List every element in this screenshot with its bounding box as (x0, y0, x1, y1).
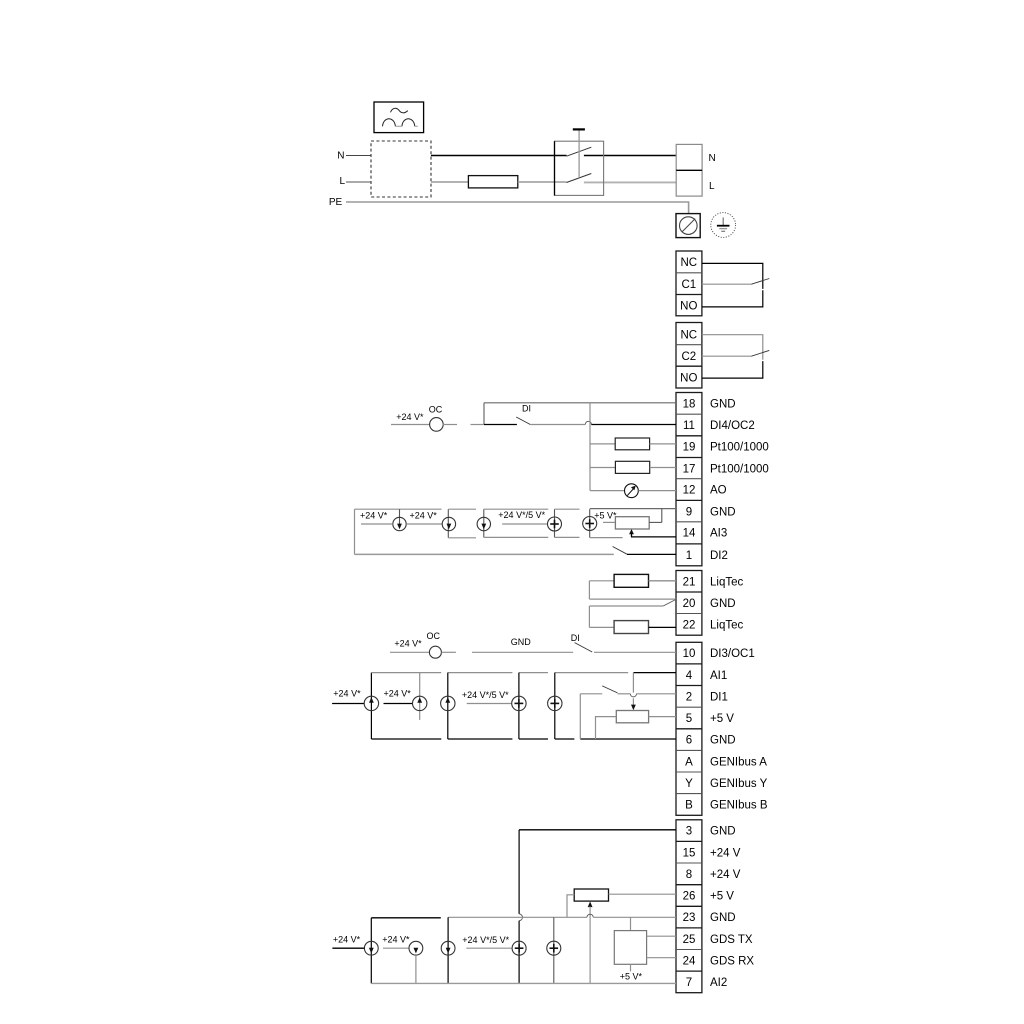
svg-text:+5 V: +5 V (710, 891, 734, 903)
svg-text:+24 V*: +24 V* (333, 688, 361, 698)
svg-text:A: A (685, 756, 693, 768)
svg-text:+24 V*: +24 V* (333, 935, 361, 945)
svg-text:4: 4 (686, 670, 693, 682)
svg-text:Pt100/1000: Pt100/1000 (710, 442, 769, 454)
svg-text:25: 25 (683, 934, 696, 946)
svg-text:23: 23 (683, 912, 696, 924)
svg-text:+24 V*/5 V*: +24 V*/5 V* (498, 510, 545, 520)
svg-text:12: 12 (683, 485, 696, 497)
svg-text:+24 V*/5 V*: +24 V*/5 V* (462, 935, 509, 945)
svg-text:19: 19 (683, 442, 696, 454)
svg-text:DI2: DI2 (710, 550, 728, 562)
svg-text:GND: GND (710, 506, 736, 518)
svg-text:9: 9 (686, 506, 692, 518)
svg-text:22: 22 (683, 619, 696, 631)
svg-text:GND: GND (710, 735, 736, 747)
svg-text:3: 3 (686, 826, 692, 838)
svg-text:DI: DI (571, 633, 580, 643)
svg-text:+24 V*: +24 V* (382, 935, 410, 945)
svg-text:20: 20 (683, 598, 696, 610)
svg-text:GND: GND (710, 598, 736, 610)
svg-text:+5 V: +5 V (710, 713, 734, 725)
svg-text:+24 V: +24 V (710, 847, 741, 859)
svg-text:GND: GND (710, 826, 736, 838)
svg-text:OC: OC (429, 404, 443, 414)
svg-text:7: 7 (686, 977, 692, 989)
svg-text:11: 11 (683, 420, 695, 432)
svg-text:C1: C1 (681, 279, 696, 291)
svg-text:B: B (685, 800, 693, 812)
svg-text:N: N (709, 153, 716, 164)
svg-text:AI3: AI3 (710, 528, 727, 540)
svg-text:AI1: AI1 (710, 670, 727, 682)
svg-text:17: 17 (683, 463, 696, 475)
svg-text:1: 1 (686, 550, 692, 562)
svg-text:5: 5 (686, 713, 692, 725)
svg-text:PE: PE (329, 197, 343, 208)
svg-text:+24 V*: +24 V* (394, 639, 422, 649)
svg-text:26: 26 (683, 891, 696, 903)
svg-text:Y: Y (685, 778, 693, 790)
svg-text:GND: GND (710, 912, 736, 924)
svg-text:AI2: AI2 (710, 977, 727, 989)
svg-text:LiqTec: LiqTec (710, 619, 743, 631)
svg-text:10: 10 (683, 648, 696, 660)
svg-text:GENIbus A: GENIbus A (710, 756, 767, 768)
svg-text:AO: AO (710, 485, 727, 497)
svg-text:DI: DI (522, 404, 531, 414)
svg-text:NO: NO (680, 300, 697, 312)
svg-text:2: 2 (686, 691, 692, 703)
svg-text:+24 V*/5 V*: +24 V*/5 V* (462, 690, 509, 700)
svg-text:NC: NC (680, 330, 697, 342)
svg-text:21: 21 (683, 576, 696, 588)
svg-text:DI3/OC1: DI3/OC1 (710, 648, 755, 660)
svg-text:OC: OC (427, 631, 441, 641)
svg-text:C2: C2 (681, 351, 696, 363)
svg-text:8: 8 (686, 869, 692, 881)
svg-text:+5 V*: +5 V* (594, 510, 617, 520)
svg-text:24: 24 (683, 955, 696, 967)
svg-text:NO: NO (680, 373, 697, 385)
svg-text:GDS RX: GDS RX (710, 955, 754, 967)
svg-text:+24 V*: +24 V* (410, 511, 438, 521)
svg-text:+24 V*: +24 V* (396, 412, 424, 422)
svg-text:L: L (709, 181, 715, 192)
svg-text:LiqTec: LiqTec (710, 576, 743, 588)
svg-text:Pt100/1000: Pt100/1000 (710, 463, 769, 475)
svg-text:6: 6 (686, 735, 692, 747)
svg-text:GND: GND (710, 398, 736, 410)
svg-text:DI4/OC2: DI4/OC2 (710, 420, 755, 432)
svg-text:+24 V: +24 V (710, 869, 741, 881)
svg-text:+24 V*: +24 V* (384, 688, 412, 698)
svg-text:GDS TX: GDS TX (710, 934, 753, 946)
svg-text:GENIbus B: GENIbus B (710, 800, 768, 812)
svg-text:L: L (339, 176, 345, 187)
svg-text:+5 V*: +5 V* (620, 971, 643, 981)
svg-text:NC: NC (680, 257, 697, 269)
svg-text:14: 14 (683, 528, 696, 540)
svg-text:GND: GND (511, 637, 532, 647)
svg-text:+24 V*: +24 V* (360, 511, 388, 521)
svg-text:15: 15 (683, 847, 696, 859)
svg-text:18: 18 (683, 398, 696, 410)
svg-text:DI1: DI1 (710, 691, 728, 703)
svg-text:N: N (337, 151, 344, 162)
svg-text:GENIbus Y: GENIbus Y (710, 778, 768, 790)
